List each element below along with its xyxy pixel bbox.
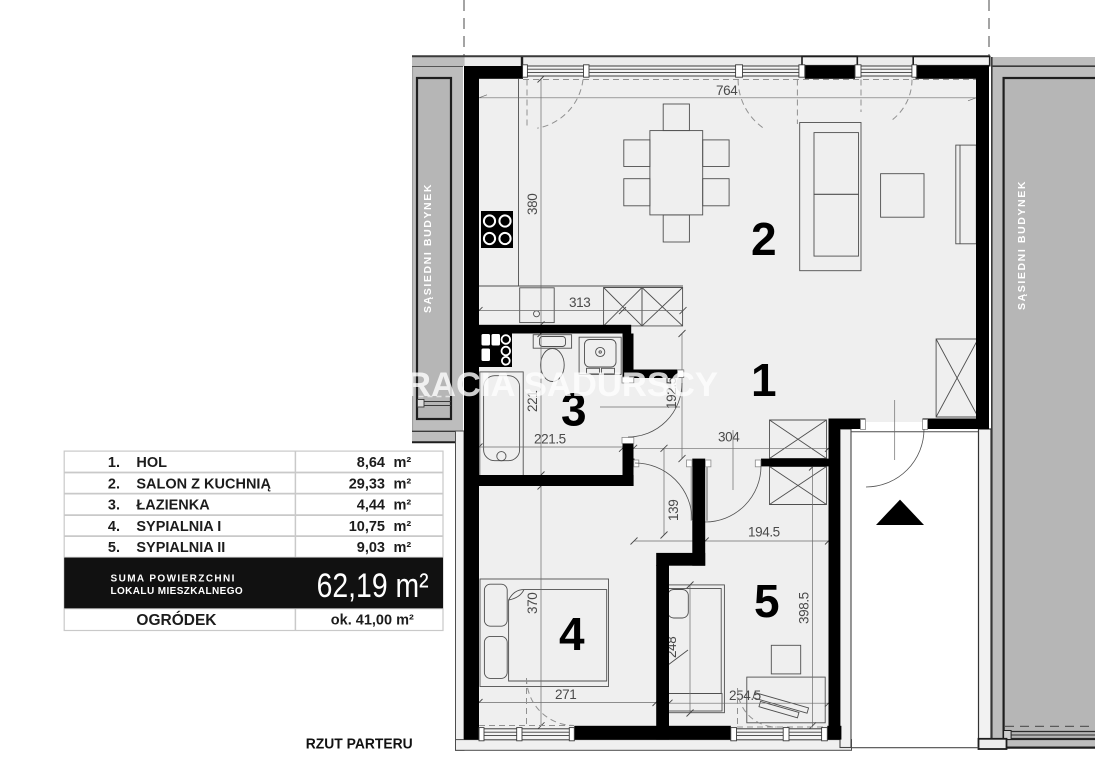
svg-text:SYPIALNIA I: SYPIALNIA I [136, 519, 221, 535]
svg-text:398.5: 398.5 [797, 592, 812, 624]
svg-text:4: 4 [559, 608, 585, 660]
svg-text:8,64: 8,64 [357, 455, 385, 471]
svg-text:SALON Z KUCHNIĄ: SALON Z KUCHNIĄ [136, 476, 271, 492]
svg-text:139: 139 [666, 500, 681, 521]
svg-text:304: 304 [718, 430, 740, 445]
svg-text:LOKALU MIESZKALNEGO: LOKALU MIESZKALNEGO [111, 586, 244, 597]
svg-text:5.: 5. [108, 540, 120, 556]
svg-text:4,44: 4,44 [357, 498, 385, 514]
svg-text:254.5: 254.5 [729, 688, 761, 703]
svg-text:29,33: 29,33 [349, 476, 385, 492]
svg-text:OGRÓDEK: OGRÓDEK [136, 611, 217, 629]
svg-text:2.: 2. [108, 476, 120, 492]
svg-text:370: 370 [525, 593, 540, 614]
svg-text:ok. 41,00 m²: ok. 41,00 m² [331, 613, 414, 629]
svg-text:SUMA POWIERZCHNI: SUMA POWIERZCHNI [111, 574, 236, 585]
svg-text:62,19 m²: 62,19 m² [317, 567, 429, 605]
svg-text:9,03: 9,03 [357, 540, 385, 556]
svg-text:SĄSIEDNI BUDYNEK: SĄSIEDNI BUDYNEK [422, 183, 434, 313]
svg-text:5: 5 [754, 575, 779, 627]
svg-text:m²: m² [394, 455, 412, 471]
svg-text:4.: 4. [108, 519, 120, 535]
svg-text:m²: m² [394, 498, 412, 514]
svg-text:SYPIALNIA II: SYPIALNIA II [136, 540, 225, 556]
svg-text:RZUT PARTERU: RZUT PARTERU [306, 736, 413, 753]
svg-text:380: 380 [525, 194, 540, 215]
svg-text:1.: 1. [108, 455, 120, 471]
svg-text:m²: m² [394, 476, 412, 492]
svg-text:RACIA SADURSCY: RACIA SADURSCY [406, 366, 718, 404]
svg-text:m²: m² [394, 519, 412, 535]
svg-text:10,75: 10,75 [349, 519, 385, 535]
svg-text:SĄSIEDNI BUDYNEK: SĄSIEDNI BUDYNEK [1016, 180, 1028, 310]
svg-text:2: 2 [751, 213, 776, 265]
svg-text:313: 313 [569, 295, 590, 310]
svg-text:271: 271 [555, 687, 576, 702]
svg-text:3.: 3. [108, 498, 120, 514]
svg-text:194.5: 194.5 [748, 525, 780, 540]
svg-text:m²: m² [394, 540, 412, 556]
svg-text:1: 1 [751, 354, 776, 406]
svg-text:ŁAZIENKA: ŁAZIENKA [136, 498, 210, 514]
svg-text:764: 764 [716, 83, 738, 98]
svg-text:HOL: HOL [136, 455, 167, 471]
